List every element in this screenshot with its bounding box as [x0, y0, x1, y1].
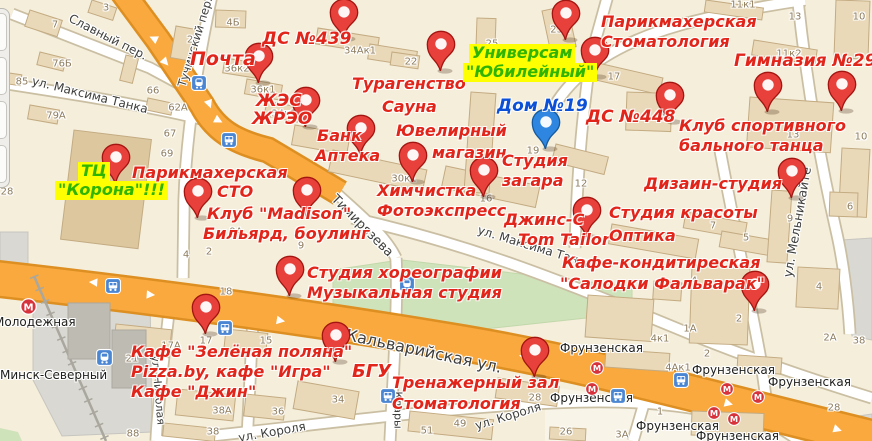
poi-label: Химчистка: [377, 183, 476, 200]
poi-label: Фотоэкспресс: [377, 203, 506, 220]
poi-label: Кафе-кондитиреская: [562, 255, 760, 272]
poi-label: магазин: [432, 145, 507, 162]
poi-label: "Корона"!!!: [56, 182, 167, 199]
poi-label: Джинс-С: [504, 212, 584, 229]
poi-label: Ювелирный: [396, 123, 507, 140]
poi-label: Клуб спортивного: [679, 118, 846, 135]
zoom-control-segment[interactable]: [0, 13, 7, 51]
poi-label: Дизаин-студия: [644, 176, 782, 193]
poi-label: Банк: [317, 128, 362, 145]
poi-label: Сауна: [382, 99, 437, 116]
poi-label: Почта: [190, 50, 256, 70]
poi-label: Бильярд, боулинг: [203, 226, 369, 243]
poi-label: ДС №439: [262, 31, 351, 49]
poi-label: ТЦ: [79, 163, 109, 180]
poi-label: Tom Tailor: [518, 232, 610, 249]
poi-label: Стоматология: [601, 34, 730, 51]
poi-label: Тренажерный зал: [392, 375, 559, 392]
poi-label: Студия хореографии: [307, 265, 502, 282]
poi-label: Кафе "Зелёная поляна": [131, 344, 352, 361]
zoom-control-segment[interactable]: [0, 101, 7, 139]
poi-label: Парикмахерская: [132, 165, 288, 182]
poi-label: ЖРЭО: [252, 111, 312, 129]
poi-label: ДС №448: [586, 109, 675, 127]
poi-label: Кафе "Джин": [131, 384, 256, 401]
poi-label: Студия: [502, 153, 568, 170]
zoom-control-segment[interactable]: [0, 145, 7, 183]
poi-label: БГУ: [352, 363, 391, 382]
poi-label: СТО: [217, 184, 253, 201]
poi-label: Музыкальная студия: [307, 285, 502, 302]
map-viewport[interactable]: ▶▶▶▶▶▶▶▶▶▶ 7324Б76Б856662А79А36к236к134к…: [0, 0, 872, 441]
poi-label: Парикмахерская: [601, 14, 757, 31]
poi-label: загара: [502, 173, 564, 190]
poi-label: Универсам: [470, 45, 574, 62]
zoom-control-segment[interactable]: [0, 57, 7, 95]
poi-label: Pizza.by, кафе "Игра": [131, 364, 331, 381]
zoom-control[interactable]: [0, 8, 10, 188]
poi-label: Гимназия №29: [734, 53, 872, 71]
poi-label: Дом №19: [497, 98, 588, 116]
poi-label: Турагенство: [352, 76, 466, 93]
poi-label: Стоматология: [392, 396, 521, 413]
poi-label: "Салодки Фальварак": [560, 276, 765, 293]
poi-label: Клуб "Madison": [207, 206, 351, 223]
poi-label: "Юбилейный": [464, 64, 596, 81]
poi-label: Оптика: [609, 228, 676, 245]
poi-label: Аптека: [315, 148, 380, 165]
poi-label: Студия красоты: [609, 205, 758, 222]
poi-label: бального танца: [679, 138, 824, 155]
